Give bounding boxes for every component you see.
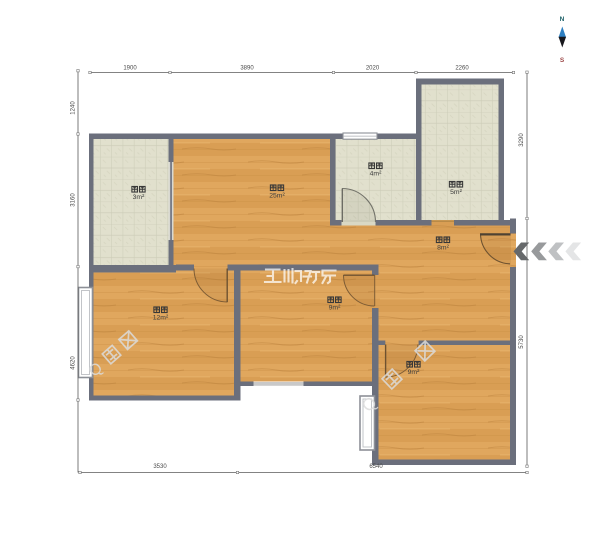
- svg-text:9m²: 9m²: [329, 305, 341, 312]
- svg-text:N: N: [560, 16, 565, 23]
- svg-text:9m²: 9m²: [408, 369, 420, 376]
- svg-text:2260: 2260: [455, 66, 469, 72]
- svg-text:3m²: 3m²: [133, 194, 145, 201]
- svg-text:25m²: 25m²: [269, 193, 285, 200]
- svg-text:12m²: 12m²: [153, 315, 169, 322]
- svg-text:3160: 3160: [71, 193, 77, 207]
- svg-text:8m²: 8m²: [437, 245, 449, 252]
- svg-text:S: S: [560, 57, 565, 64]
- svg-text:1240: 1240: [71, 101, 77, 115]
- svg-text:6540: 6540: [369, 464, 383, 470]
- svg-text:4m²: 4m²: [370, 171, 382, 178]
- svg-text:5730: 5730: [519, 335, 525, 349]
- svg-text:3290: 3290: [519, 133, 525, 147]
- svg-text:3530: 3530: [153, 464, 167, 470]
- svg-text:2020: 2020: [366, 66, 380, 72]
- svg-text:5m²: 5m²: [450, 189, 462, 196]
- svg-text:1900: 1900: [123, 66, 137, 72]
- svg-text:4620: 4620: [71, 356, 77, 370]
- svg-text:3890: 3890: [240, 66, 254, 72]
